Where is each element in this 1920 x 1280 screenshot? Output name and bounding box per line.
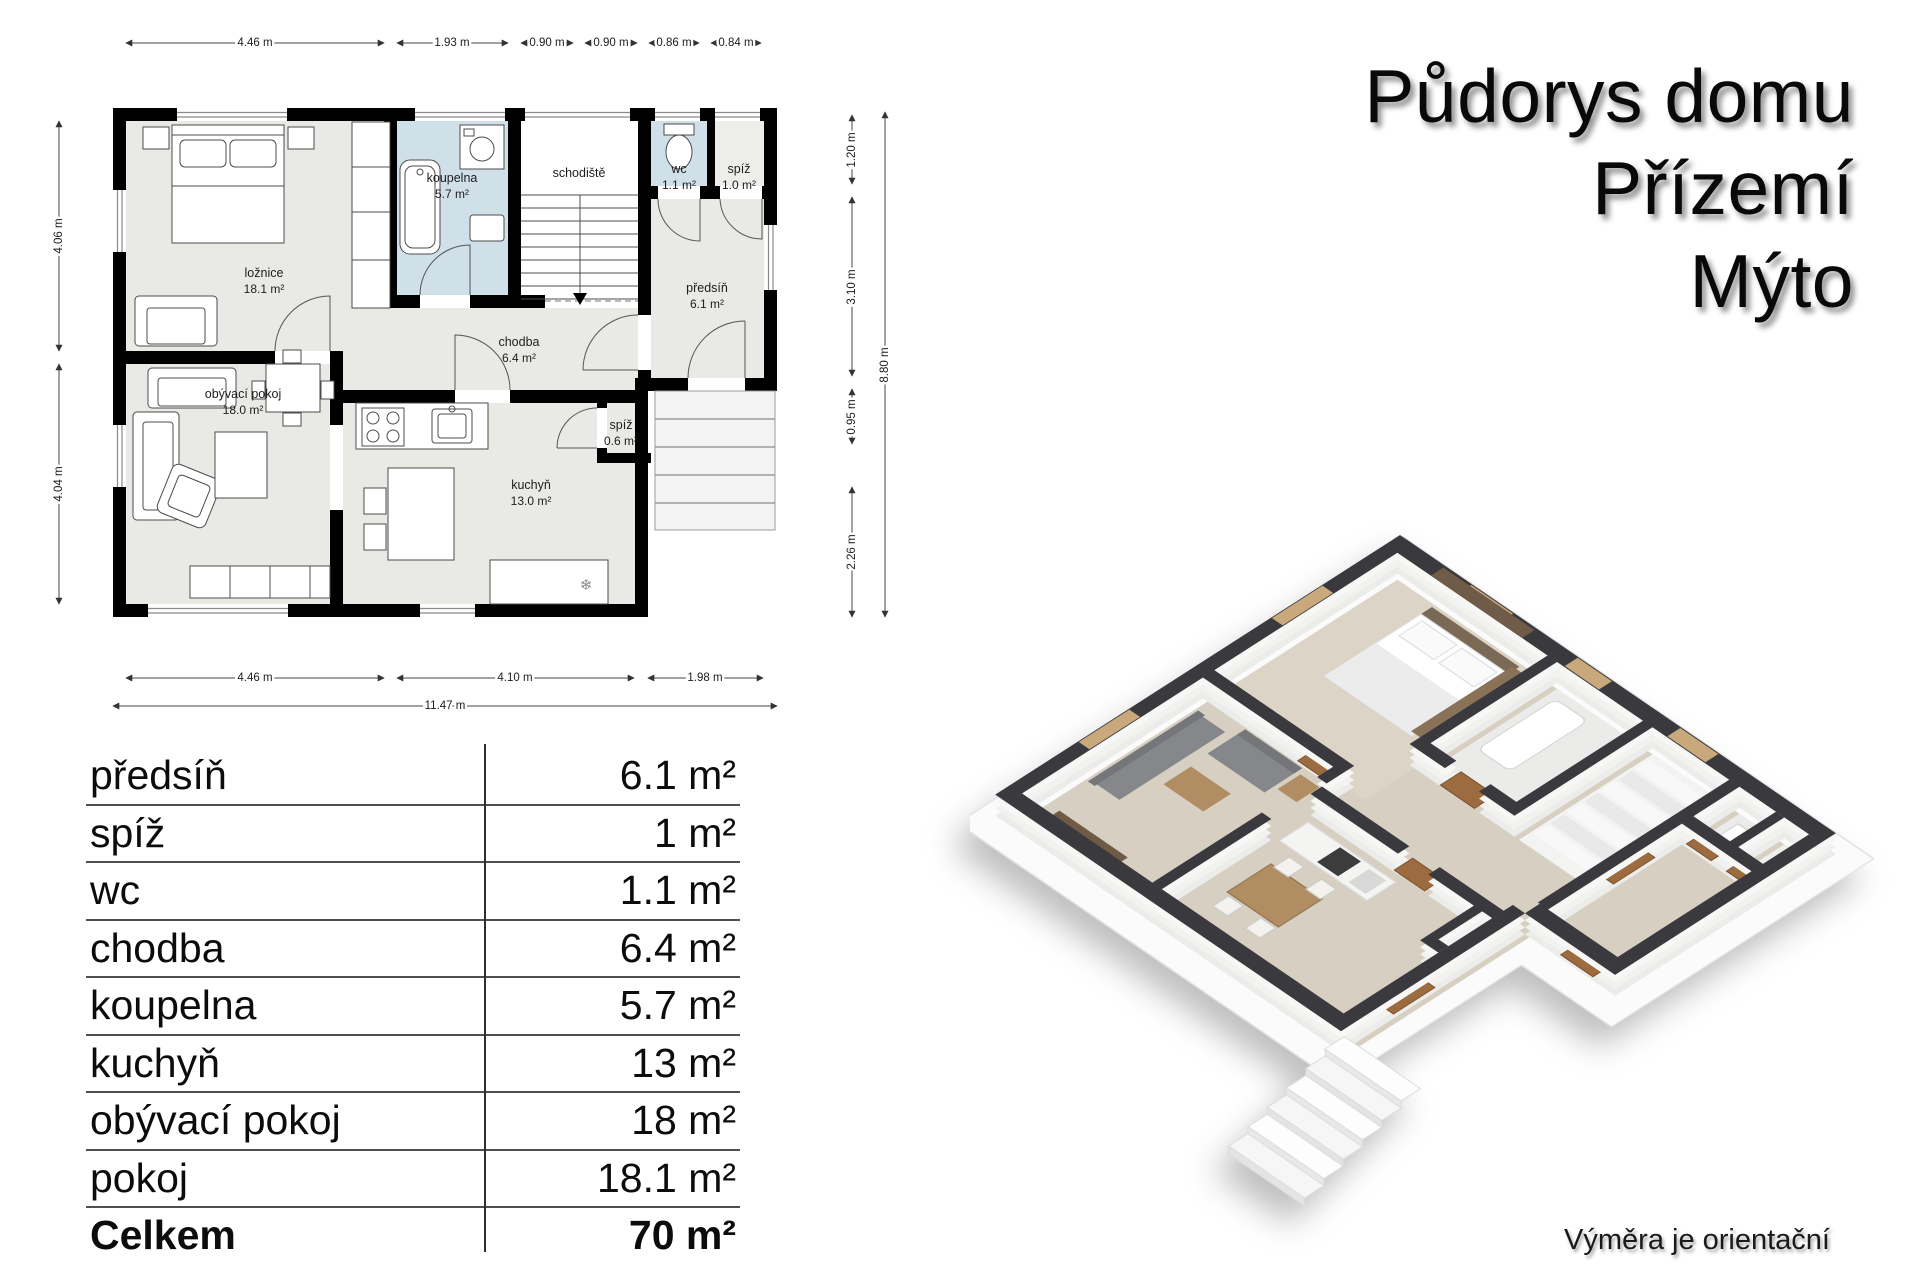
room-area: 18 m² (480, 1097, 740, 1144)
room-area-wc: 1.1 m² (662, 178, 696, 192)
dim-bottom-2: 1.98 m (687, 672, 722, 684)
room-area: 5.7 m² (480, 982, 740, 1029)
table-row: pokoj 18.1 m² (86, 1149, 740, 1207)
room-area-kuchyn: 13.0 m² (511, 494, 552, 508)
room-label-chodba: chodba (498, 335, 539, 349)
room-area-loznice: 18.1 m² (244, 282, 285, 296)
room-label-kuchyn: kuchyň (511, 478, 551, 492)
entrance-steps (655, 391, 775, 530)
room-area-predsin: 6.1 m² (690, 297, 724, 311)
room-area-spiz-mala: 0.6 m² (604, 434, 638, 448)
room-area-chodba: 6.4 m² (502, 351, 536, 365)
dim-top-0: 4.46 m (237, 37, 272, 49)
dim-right-1: 3.10 m (846, 269, 858, 304)
room-area-koupelna: 5.7 m² (435, 187, 469, 201)
wardrobe (352, 122, 390, 308)
room-label-koupelna: koupelna (427, 171, 478, 185)
room-area-spiz-horni: 1.0 m² (722, 178, 756, 192)
total-label: Celkem (86, 1212, 480, 1259)
room-name: kuchyň (86, 1040, 480, 1087)
table-row: chodba 6.4 m² (86, 919, 740, 977)
dim-left-0: 4.06 m (53, 218, 65, 253)
table-column-divider (484, 744, 486, 1252)
dim-right-2: 0.95 m (846, 399, 858, 434)
room-label-loznice: ložnice (245, 266, 284, 280)
dim-left-1: 4.04 m (53, 466, 65, 501)
dim-bottom-1: 4.10 m (497, 672, 532, 684)
dim-right-3: 2.26 m (846, 534, 858, 569)
room-label-spiz-mala: spíž (610, 418, 633, 432)
bedroom-sofa (135, 296, 217, 346)
kitchen-counter (356, 403, 488, 449)
washing-machine (460, 125, 504, 169)
room-name: spíž (86, 810, 480, 857)
iso-entrance-steps (1229, 1037, 1421, 1206)
room-name: předsíň (86, 752, 480, 799)
room-name: wc (86, 867, 480, 914)
title-line-3: Mýto (1364, 235, 1854, 327)
nightstand (143, 127, 169, 149)
bed (172, 125, 284, 243)
room-label-wc: wc (670, 162, 686, 176)
disclaimer-caption: Výměra je orientační (1564, 1224, 1830, 1257)
dim-top-3: 0.90 m (593, 37, 628, 49)
dim-right-total: 8.80 m (879, 347, 891, 382)
floor-plan-sheet: ❄ ložnice 18.1 m² koupelna (0, 0, 1920, 1280)
coffee-table (215, 432, 267, 498)
dim-top-5: 0.84 m (718, 37, 753, 49)
dim-bottom-0: 4.46 m (237, 672, 272, 684)
room-area: 13 m² (480, 1040, 740, 1087)
total-area: 70 m² (480, 1212, 740, 1259)
room-label-obyvaci: obývací pokoj (205, 387, 281, 401)
room-area: 6.4 m² (480, 925, 740, 972)
table-row: koupelna 5.7 m² (86, 976, 740, 1034)
dim-right-0: 1.20 m (846, 132, 858, 167)
room-area: 1.1 m² (480, 867, 740, 914)
dim-top-1: 1.93 m (434, 37, 469, 49)
room-area: 18.1 m² (480, 1155, 740, 1202)
dim-bottom-total: 11.47 m (425, 700, 466, 712)
nightstand (288, 127, 314, 149)
area-table: předsíň 6.1 m² spíž 1 m² wc 1.1 m² chodb… (86, 748, 740, 1264)
dim-top-4: 0.86 m (656, 37, 691, 49)
room-name: koupelna (86, 982, 480, 1029)
room-name: pokoj (86, 1155, 480, 1202)
room-label-schodiste: schodiště (553, 166, 606, 180)
title-line-1: Půdorys domu (1364, 50, 1854, 142)
floor-plan-3d (970, 495, 1910, 1235)
room-name: obývací pokoj (86, 1097, 480, 1144)
tv-unit (190, 566, 330, 598)
room-label-spiz-horni: spíž (728, 162, 751, 176)
floor-plan-2d: ❄ ložnice 18.1 m² koupelna (0, 0, 950, 740)
title-line-2: Přízemí (1364, 142, 1854, 234)
table-row: kuchyň 13 m² (86, 1034, 740, 1092)
table-total-row: Celkem 70 m² (86, 1206, 740, 1264)
table-row: obývací pokoj 18 m² (86, 1091, 740, 1149)
washbasin (470, 215, 504, 241)
table-row: spíž 1 m² (86, 804, 740, 862)
room-area-obyvaci: 18.0 m² (223, 403, 264, 417)
snowflake-icon: ❄ (580, 577, 593, 594)
room-label-predsin: předsíň (686, 281, 728, 295)
table-row: wc 1.1 m² (86, 861, 740, 919)
dim-top-2: 0.90 m (529, 37, 564, 49)
table-row: předsíň 6.1 m² (86, 748, 740, 804)
room-name: chodba (86, 925, 480, 972)
room-area: 6.1 m² (480, 752, 740, 799)
page-title: Půdorys domu Přízemí Mýto (1364, 50, 1854, 327)
room-area: 1 m² (480, 810, 740, 857)
